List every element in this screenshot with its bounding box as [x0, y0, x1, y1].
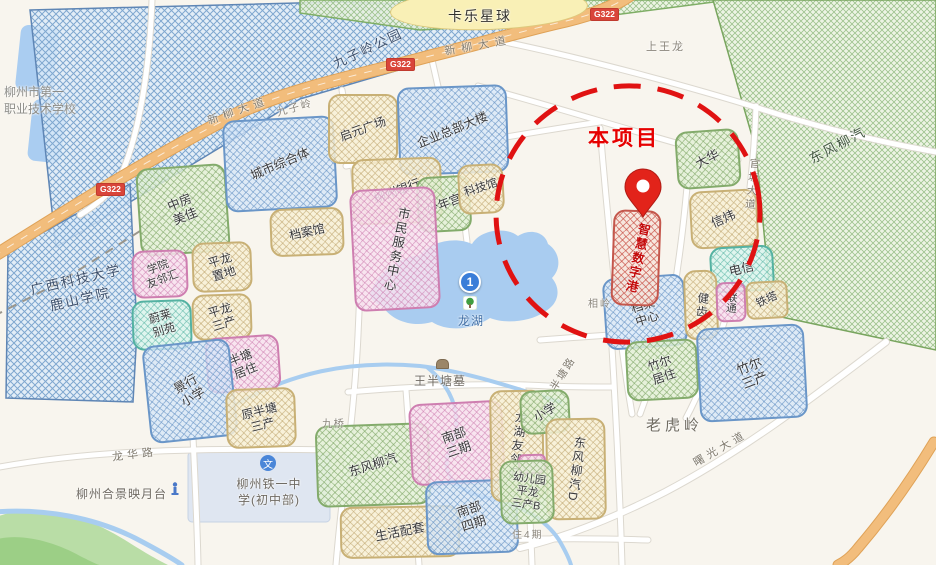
g322-badge: G322 [96, 183, 125, 196]
monument-icon [170, 482, 180, 495]
parcel-youeryuan: 幼儿园平龙三产B [499, 459, 555, 525]
parcel-label: 信炜 [710, 207, 739, 230]
parcel-label: 档案馆 [288, 221, 326, 242]
school-icon: 文 [260, 455, 276, 471]
parcel-label: 原半塘三产 [240, 400, 282, 436]
parcel-label: 中房美佳 [166, 192, 200, 229]
parcel-tieta: 铁塔 [745, 280, 789, 320]
parcel-label: 东风柳汽D [565, 435, 587, 503]
hejing-label: 柳州合景映月台 [76, 485, 167, 502]
village-label-shangwanglong: 上王龙 [646, 38, 685, 54]
parcel-label: 平龙置地 [206, 250, 237, 284]
label-zhu4qi: 住4期 [512, 526, 544, 541]
parcel-pinglong-zhidi: 平龙置地 [191, 241, 253, 293]
parcel-label: 大华 [693, 147, 722, 172]
map-canvas: 中房美佳 城市综合体 启元广场 企业总部大楼 柳州银行 少年宫 科技馆 档案馆 … [0, 0, 936, 565]
parcel-qiyuan-plaza: 启元广场 [328, 94, 398, 164]
parcel-label: 铁塔 [754, 289, 779, 310]
parcel-label: 南部四期 [456, 499, 489, 535]
parcel-zhihui-shuzigang: 智慧数字港 [610, 209, 661, 307]
parcel-label: 启元广场 [338, 114, 388, 144]
parcel-kejiguan: 科技馆 [457, 163, 506, 215]
village-label-xiangling: 相岭 [588, 295, 612, 310]
parcel-liantong: 联通 [715, 281, 746, 322]
parcel-label: 电信 [728, 259, 756, 279]
tomb-icon [436, 359, 449, 369]
lake-marker-1: 1 [459, 271, 481, 293]
parcel-dahua: 大华 [674, 128, 742, 190]
parcel-zhuer-sanchan: 竹尔三产 [696, 323, 809, 423]
tieyi-school-label: 柳州铁一中 学(初中部) [222, 476, 316, 508]
parcel-label: 蔚莱别苑 [147, 309, 177, 342]
parcel-danganguan: 档案馆 [269, 207, 345, 258]
village-label-laohuling: 老虎岭 [646, 414, 703, 435]
parcel-xueyuan-youlinhui: 学院友邻汇 [131, 249, 189, 299]
parcel-label: 平龙三产 [206, 300, 237, 334]
parcel-zhuer-juzhu: 竹尔居住 [624, 338, 699, 402]
g322-badge: G322 [386, 58, 415, 71]
parcel-label: 城市综合体 [248, 145, 311, 183]
parcel-chengshi-zongheti: 城市综合体 [222, 115, 339, 213]
parcel-label: 景行小学 [172, 372, 208, 410]
parcel-pinglong-sanchan: 平龙三产 [191, 293, 253, 341]
parcel-shimin-fuwu-zhongxin: 市民服务中心 [349, 186, 441, 312]
road-label-jiuqiao: 九桥 [322, 416, 345, 431]
g322-badge: G322 [590, 8, 619, 21]
parcel-label: 幼儿园平龙三产B [508, 470, 546, 513]
project-zone-label: 智慧数字港 [621, 221, 651, 295]
parcel-label: 市民服务中心 [379, 205, 410, 293]
lake-label: 龙湖 [458, 312, 484, 329]
parcel-label: 生活配套 [374, 520, 426, 544]
parcel-label: 联通 [724, 291, 739, 313]
parcel-jingxing-xiaoxue: 景行小学 [141, 338, 239, 445]
parcel-label: 企业总部大楼 [415, 109, 490, 151]
parcel-label: 健齿 [693, 291, 709, 319]
vocational-school-label: 柳州市第一 职业技术学校 [4, 84, 114, 118]
tree-icon [463, 296, 477, 310]
parcel-label: 竹尔三产 [734, 354, 769, 392]
parcel-label: 科技馆 [462, 177, 499, 201]
kale-planet-label: 卡乐星球 [448, 6, 512, 26]
parcel-label: 南部三期 [440, 425, 473, 461]
parcel-label: 竹尔居住 [646, 353, 678, 388]
tomb-label: 王半塘墓 [414, 372, 466, 389]
parcel-yuan-bantang-sanchan: 原半塘三产 [225, 387, 297, 449]
project-callout: 本项目 [588, 122, 660, 152]
parcel-label: 东风柳汽 [347, 450, 399, 479]
parcel-label: 学院友邻汇 [140, 256, 180, 292]
